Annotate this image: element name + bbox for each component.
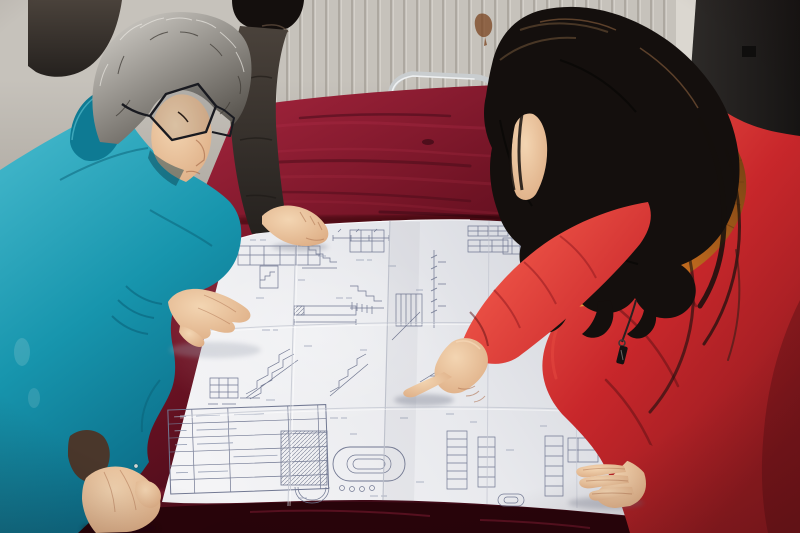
vignette — [0, 0, 800, 533]
photo — [0, 0, 800, 533]
photo-canvas — [0, 0, 800, 533]
